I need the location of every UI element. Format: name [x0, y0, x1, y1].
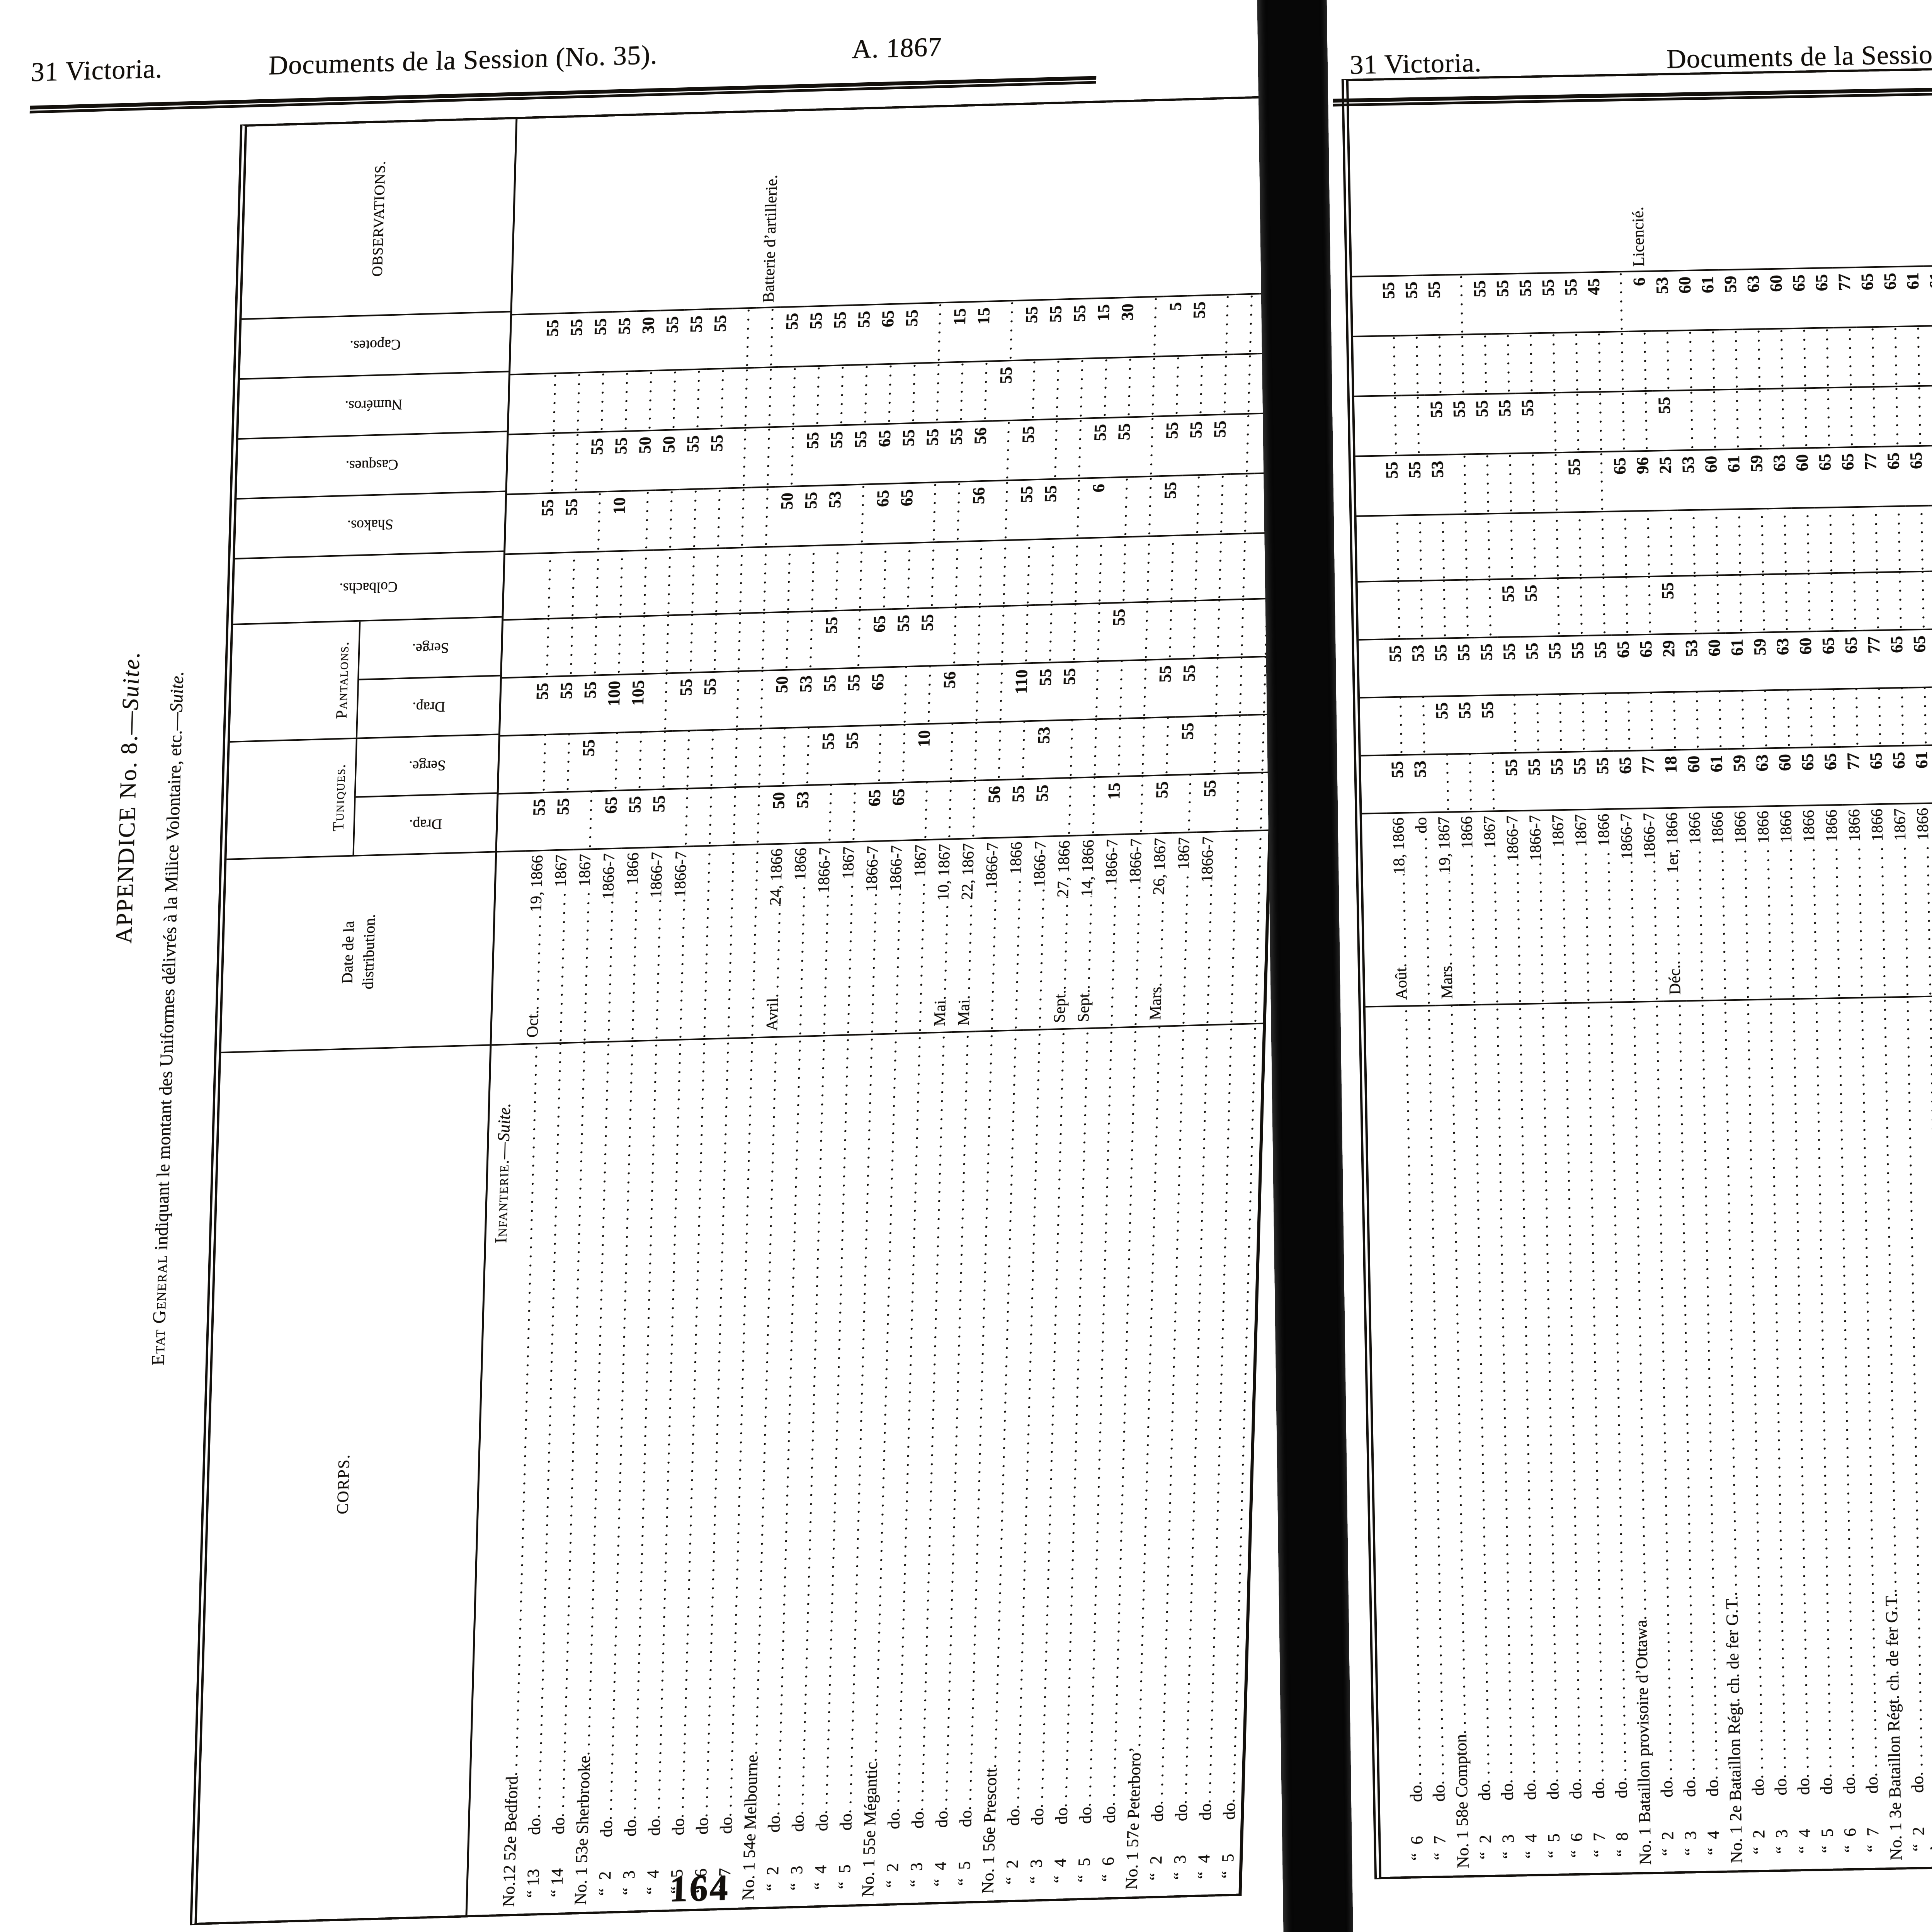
cell-pantalons-drap	[1104, 661, 1129, 720]
cell-tuniques-drap: 55	[549, 793, 575, 851]
cell-tuniques-drap	[1454, 754, 1478, 813]
quantity-value: 65	[888, 783, 908, 806]
cell-casques: 55	[1206, 415, 1232, 476]
leader-dots	[650, 732, 670, 789]
cell-tuniques-drap	[1053, 778, 1078, 837]
leader-dots	[571, 886, 594, 1042]
leader-dots	[725, 614, 745, 671]
cell-tuniques-drap	[497, 794, 527, 852]
cell-casques: 55	[583, 432, 609, 493]
cell-numeros	[1040, 360, 1066, 420]
observation-label: Batterie d’artillerie.	[759, 175, 781, 303]
cell-numeros	[509, 374, 539, 435]
cell-date: 1866	[1706, 808, 1732, 1001]
cell-casques: 55	[1447, 395, 1471, 455]
leader-dots	[1122, 884, 1144, 1026]
quantity-value: 55	[1564, 453, 1584, 476]
leader-dots	[1749, 575, 1769, 632]
quantity-value: 56	[970, 422, 990, 445]
cell-capotes	[755, 308, 780, 369]
leader-dots	[840, 784, 860, 841]
cell-tuniques-serge	[1772, 690, 1796, 749]
header-date-line1: Date de la	[337, 921, 359, 984]
leader-dots	[1115, 358, 1135, 417]
leader-dots	[562, 433, 582, 492]
leader-dots	[940, 608, 961, 665]
cell-pantalons-serge	[842, 611, 867, 669]
quantity-value: 55	[587, 432, 607, 455]
cell-capotes: 45	[1582, 273, 1606, 333]
cell-casques	[1539, 393, 1563, 454]
cell-pantalons-serge	[1588, 578, 1612, 636]
cell-tuniques-drap	[717, 788, 743, 847]
cell-capotes: 61	[1696, 270, 1720, 331]
leader-dots	[754, 428, 774, 486]
cell-numeros	[872, 364, 898, 425]
quantity-value: 53	[792, 786, 813, 809]
leader-dots	[607, 552, 627, 616]
quantity-value: 55	[662, 311, 682, 333]
cell-pantalons-drap: 55	[673, 673, 698, 732]
date-value: 1866	[1731, 807, 1750, 844]
leader-dots	[750, 548, 771, 612]
cell-capotes: 55	[1042, 300, 1068, 361]
cell-capotes: 55	[611, 312, 636, 372]
corps-label: “ 7 do	[1588, 1782, 1610, 1866]
quantity-value: 55	[1008, 780, 1028, 803]
cell-pantalons-serge	[986, 607, 1011, 665]
quantity-value: 61	[1706, 750, 1726, 772]
leader-dots	[1081, 720, 1101, 777]
corps-label: “ 3 do	[1169, 1804, 1191, 1889]
cell-date: 1866	[1592, 810, 1618, 1003]
cell-pantalons-drap	[1200, 658, 1225, 717]
quantity-value: 63	[1752, 749, 1772, 772]
leader-dots	[708, 369, 728, 428]
cell-numeros	[801, 366, 826, 427]
cell-casques	[560, 433, 585, 494]
cell-tuniques-drap	[669, 789, 695, 848]
leader-dots	[684, 370, 704, 429]
corps-label: “ 5 do	[1073, 1807, 1095, 1891]
leader-dots	[1055, 779, 1075, 835]
header-pantalons-drap: Drap.	[357, 676, 500, 737]
quantity-value: 55	[1032, 779, 1052, 802]
cell-casques	[1354, 397, 1380, 457]
cell-pantalons-drap: 77	[1862, 631, 1886, 689]
leader-dots	[733, 309, 753, 367]
leader-dots	[696, 789, 716, 845]
corps-label: “ 4 do	[1193, 1803, 1215, 1888]
cell-casques: 55	[1087, 418, 1112, 479]
cell-shakos: 53	[1426, 455, 1450, 515]
leader-dots	[564, 373, 584, 432]
cell-pantalons-serge	[1383, 582, 1406, 640]
cell-observations	[512, 118, 546, 315]
cell-pantalons-drap: 105	[625, 675, 650, 733]
cell-tuniques-serge	[551, 735, 577, 793]
leader-dots	[1458, 849, 1479, 1004]
cell-colbachs	[1883, 507, 1906, 573]
leader-dots	[1640, 859, 1662, 1001]
leader-dots	[1754, 843, 1776, 999]
date-value: do	[1412, 813, 1430, 833]
cell-pantalons-drap: 59	[1748, 633, 1772, 691]
cell-tuniques-serge	[1567, 694, 1591, 753]
cell-shakos: 55	[558, 493, 583, 554]
leader-dots	[752, 488, 772, 546]
quantity-value: 65	[1815, 448, 1835, 471]
header-pantalons-drap-label: Drap.	[412, 698, 446, 716]
quantity-value: 55	[556, 677, 577, 699]
date-month: Avril	[762, 998, 782, 1037]
quantity-value: 77	[1864, 631, 1884, 654]
quantity-value: 15	[973, 302, 994, 325]
leader-dots	[651, 674, 672, 731]
cell-casques	[1835, 388, 1859, 448]
quantity-value: 55	[917, 609, 937, 631]
cell-pantalons-serge	[1611, 578, 1634, 636]
cell-shakos	[1471, 454, 1495, 515]
quantity-value: 55	[1432, 697, 1452, 719]
cell-casques	[1607, 392, 1631, 452]
quantity-value: 63	[1772, 633, 1793, 655]
quantity-value: 65	[878, 304, 898, 327]
rotated-table-area: “ 6 doAoût18, 186655555555 “ 7 dodo53535…	[1338, 42, 1932, 1879]
leader-dots	[1881, 327, 1901, 386]
leader-dots	[667, 897, 689, 1039]
leader-dots	[530, 735, 550, 792]
masthead-right: A. 1867	[852, 32, 942, 65]
cell-casques: 56	[967, 422, 992, 482]
cell-tuniques-serge	[1222, 716, 1248, 774]
cell-pantalons-drap	[1224, 658, 1249, 716]
leader-dots	[1816, 508, 1836, 573]
cell-capotes: 55	[779, 307, 804, 368]
leader-dots	[1038, 539, 1058, 604]
column-headers: CORPS.Date de ladistribution.Tuniques.Dr…	[197, 119, 518, 1923]
leader-dots	[985, 723, 1005, 779]
leader-dots	[701, 615, 721, 672]
leader-dots	[1156, 602, 1176, 659]
cell-tuniques-serge	[695, 730, 721, 789]
leader-dots	[1569, 694, 1589, 751]
cell-observations	[1761, 73, 1787, 270]
cell-pantalons-serge: 55	[1519, 579, 1543, 638]
cell-observations	[1578, 77, 1605, 273]
cell-tuniques-serge	[1749, 691, 1773, 749]
cell-tuniques-drap: 18	[1659, 750, 1683, 809]
corps-label: No.12 52e Bedford	[498, 1776, 522, 1907]
cell-tuniques-serge: 55	[1430, 697, 1454, 755]
quantity-value: 55	[682, 430, 703, 452]
leader-dots	[1228, 600, 1248, 656]
leader-dots	[1526, 861, 1548, 1003]
corps-label: No. 1 3e Bataillon Régt. ch. de fer G.T.	[1881, 1593, 1906, 1861]
cell-numeros	[1423, 335, 1447, 396]
date-value: 1866-7	[1198, 832, 1218, 883]
leader-dots	[1590, 578, 1609, 635]
leader-dots	[1585, 333, 1605, 391]
cell-shakos: 65	[869, 484, 895, 545]
date-value: 1866-7	[599, 849, 619, 900]
leader-dots	[1681, 577, 1701, 633]
page-number: 165	[1927, 1833, 1932, 1877]
cell-pantalons-drap: 50	[769, 670, 794, 729]
quantity-value: 55	[1177, 717, 1198, 740]
quantity-value: 55	[830, 306, 850, 329]
leader-dots	[804, 367, 824, 425]
quantity-value: 55	[624, 791, 645, 813]
cell-casques	[727, 429, 753, 489]
quantity-value: 65	[1613, 636, 1633, 658]
cell-numeros	[1697, 330, 1721, 391]
cell-colbachs	[556, 553, 582, 619]
leader-dots	[746, 729, 766, 786]
leader-dots	[959, 781, 980, 838]
cell-shakos	[630, 491, 655, 552]
cell-tuniques-drap	[693, 788, 719, 847]
cell-tuniques-drap: 55	[1591, 752, 1615, 810]
date-value: 1866	[1867, 805, 1887, 842]
cell-pantalons-serge	[1679, 576, 1703, 634]
leader-dots	[524, 912, 545, 1010]
cell-pantalons-drap: 63	[1771, 633, 1795, 691]
cell-numeros	[1112, 358, 1138, 418]
cell-pantalons-serge: 55	[818, 611, 844, 670]
leader-dots	[1839, 508, 1859, 572]
leader-dots	[1065, 419, 1085, 478]
cell-tuniques-drap: 61	[1910, 746, 1932, 804]
leader-dots	[1823, 842, 1844, 998]
cell-pantalons-serge	[794, 612, 820, 670]
cell-pantalons-serge	[1474, 580, 1498, 638]
leader-dots	[778, 427, 798, 486]
cell-casques	[1903, 387, 1927, 447]
leader-dots	[1797, 690, 1816, 747]
leader-dots	[1704, 576, 1723, 633]
leader-dots	[993, 421, 1014, 480]
header-date-line2: distribution.	[357, 914, 380, 990]
leader-dots	[1927, 327, 1932, 385]
leader-dots	[588, 372, 608, 431]
header-tuniques-subcolumns: Drap.Serge.	[354, 735, 498, 855]
cell-tuniques-drap	[1124, 776, 1150, 835]
leader-dots	[1134, 537, 1154, 601]
quantity-value: 30	[638, 311, 658, 334]
cell-tuniques-drap	[1431, 755, 1455, 813]
cell-pantalons-serge	[1565, 578, 1589, 637]
leader-dots	[810, 893, 833, 1035]
cell-capotes: 55	[1018, 301, 1044, 361]
leader-dots	[1728, 691, 1748, 748]
cell-pantalons-drap: 29	[1657, 634, 1681, 693]
cell-pantalons-serge	[1884, 573, 1908, 631]
corps-label: “ 5 do	[834, 1813, 856, 1898]
cell-colbachs	[1837, 508, 1861, 574]
quantity-value: 55	[1561, 273, 1581, 296]
leader-dots	[955, 900, 976, 1000]
quantity-value: 65	[1636, 635, 1656, 658]
cell-capotes: 55	[1536, 274, 1560, 334]
cell-colbachs	[1472, 514, 1496, 580]
leader-dots	[723, 672, 743, 729]
leader-dots	[992, 481, 1012, 540]
cell-capotes: 55	[898, 304, 924, 365]
cell-numeros	[1674, 331, 1698, 391]
cell-pantalons-serge	[1793, 574, 1816, 633]
cell-observations	[1419, 80, 1445, 276]
header-numeros: Numéros.	[238, 372, 509, 439]
date-value: 1866	[1753, 807, 1773, 844]
cell-tuniques-serge	[1150, 718, 1176, 776]
leader-dots	[1051, 897, 1072, 990]
cell-shakos: 53	[1677, 451, 1701, 511]
corps-label: No. 1 54e Melbourne	[738, 1755, 762, 1901]
leader-dots	[619, 885, 641, 1041]
quantity-value: 55	[801, 486, 821, 509]
leader-dots	[988, 607, 1009, 663]
corps-label: “ 3 do	[1497, 1783, 1519, 1867]
cell-capotes	[1352, 277, 1378, 337]
cell-tuniques-drap: 65	[861, 784, 886, 842]
cell-numeros	[1720, 330, 1744, 390]
corps-label: “ 3 do	[906, 1811, 928, 1896]
leader-dots	[894, 544, 915, 608]
cell-colbachs	[1586, 512, 1610, 578]
cell-shakos: 55	[798, 486, 823, 547]
leader-dots	[1207, 475, 1228, 534]
quantity-value: 65	[1837, 448, 1857, 471]
date-value: 24, 1866	[766, 844, 786, 905]
cell-tuniques-drap: 50	[765, 786, 791, 845]
cell-observations	[1510, 78, 1536, 274]
cell-capotes: 15	[946, 303, 972, 363]
leader-dots	[1471, 335, 1491, 393]
cell-numeros	[609, 372, 634, 432]
leader-dots	[679, 549, 699, 614]
leader-dots	[1845, 842, 1867, 997]
date-value: 18, 1866	[1389, 813, 1408, 874]
corps-label: “ 3 do	[1771, 1778, 1792, 1862]
cell-numeros: 55	[992, 361, 1018, 422]
leader-dots	[1746, 389, 1765, 448]
cell-tuniques-serge	[1658, 692, 1682, 751]
date-value: 1867	[911, 840, 930, 877]
quantity-value: 55	[1189, 296, 1209, 319]
leader-dots	[1686, 844, 1707, 1000]
cell-colbachs	[532, 554, 558, 620]
cell-observations	[1487, 78, 1514, 275]
date-value: 19, 1867	[1434, 813, 1454, 874]
page-165: 31 Victoria. Documents de la Session (No…	[1325, 0, 1932, 1932]
date-value: 1866	[1685, 808, 1704, 845]
quantity-value: 110	[1011, 664, 1031, 694]
cell-colbachs	[1632, 512, 1656, 578]
cell-shakos	[750, 488, 775, 548]
leader-dots	[1036, 605, 1056, 662]
cell-colbachs	[1107, 537, 1133, 604]
date-value: 1867	[575, 850, 595, 886]
leader-dots	[1635, 577, 1655, 634]
corps-label: No. 1 58e Compton	[1451, 1734, 1473, 1869]
quantity-value: 10	[914, 724, 934, 747]
cell-tuniques-serge: 55	[1174, 717, 1200, 776]
cell-date: 1866	[1820, 806, 1846, 999]
quantity-value: 55	[820, 669, 840, 692]
cell-colbachs	[1035, 539, 1061, 606]
cell-observations	[1692, 75, 1719, 271]
cell-date: 1866-7	[1615, 810, 1641, 1003]
leader-dots	[852, 365, 872, 424]
leader-dots	[1634, 512, 1654, 576]
cell-shakos: 55	[1157, 476, 1182, 537]
leader-dots	[535, 554, 555, 618]
cell-date: 1866	[1797, 806, 1823, 1000]
cell-tuniques-serge: 10	[911, 724, 936, 783]
leader-dots	[944, 482, 964, 541]
cell-colbachs	[1179, 536, 1205, 602]
leader-dots	[845, 611, 865, 667]
cell-date: Mars19, 1867	[1432, 813, 1459, 1006]
leader-dots	[966, 542, 986, 606]
quantity-value: 53	[1408, 639, 1428, 662]
corps-label: “ 2 do	[594, 1820, 616, 1905]
cell-pantalons-serge	[722, 614, 748, 673]
date-month: Déc.	[1665, 964, 1684, 1000]
leader-dots	[557, 619, 577, 675]
quantity-value: 6	[1088, 478, 1109, 493]
cell-numeros	[1160, 356, 1185, 417]
cell-observations	[1738, 73, 1764, 270]
cell-pantalons-serge	[938, 608, 963, 667]
leader-dots	[1182, 536, 1202, 600]
leader-dots	[1836, 328, 1855, 387]
cell-colbachs	[796, 546, 821, 612]
quantity-value: 55	[1040, 480, 1061, 502]
cell-shakos	[505, 494, 536, 555]
leader-dots	[1218, 832, 1242, 1024]
cell-numeros	[729, 369, 754, 429]
cell-colbachs	[772, 547, 798, 613]
leader-dots	[1501, 696, 1520, 752]
leader-dots	[720, 788, 740, 845]
quantity-value: 55	[1498, 580, 1518, 602]
leader-dots	[1132, 602, 1152, 659]
cell-pantalons-serge	[1770, 575, 1794, 633]
header-corps-label: CORPS.	[333, 1454, 353, 1515]
leader-dots	[655, 550, 675, 615]
quantity-value: 55	[1454, 696, 1475, 719]
cell-colbachs	[748, 548, 774, 614]
leader-dots	[1885, 507, 1905, 571]
quantity-value: 53	[796, 670, 816, 693]
quantity-value: 63	[1769, 449, 1789, 472]
cell-date	[1362, 814, 1390, 1007]
cell-pantalons-serge	[1358, 582, 1384, 641]
cell-tuniques-serge	[1007, 722, 1032, 781]
cell-casques: 55	[1158, 416, 1184, 477]
corps-label: “ 6 do	[1566, 1782, 1587, 1866]
quantity-value: 55	[553, 793, 573, 815]
leader-dots	[780, 367, 800, 426]
leader-dots	[722, 730, 742, 787]
cell-colbachs	[724, 548, 750, 615]
cell-pantalons-drap: 55	[577, 676, 602, 735]
quantity-value: 77	[1860, 447, 1880, 470]
leader-dots	[585, 492, 605, 551]
leader-dots	[1503, 861, 1525, 1003]
